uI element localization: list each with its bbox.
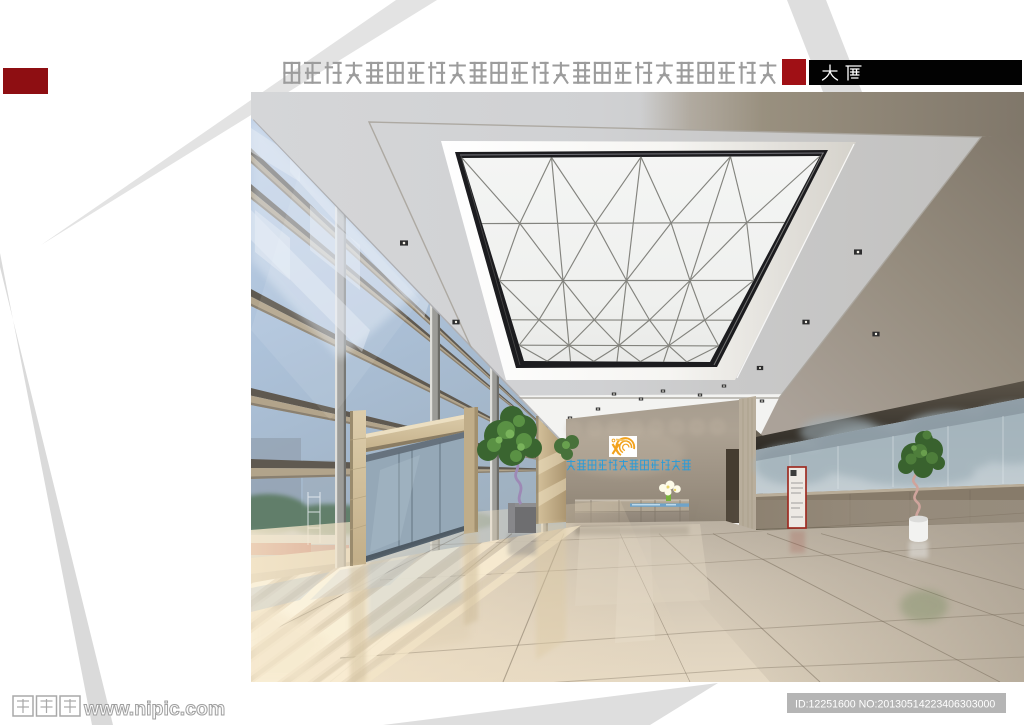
- svg-text:www.nipic.com: www.nipic.com: [83, 698, 225, 720]
- svg-text:ID:12251600 NO:201305142234063: ID:12251600 NO:20130514223406303000: [795, 699, 995, 711]
